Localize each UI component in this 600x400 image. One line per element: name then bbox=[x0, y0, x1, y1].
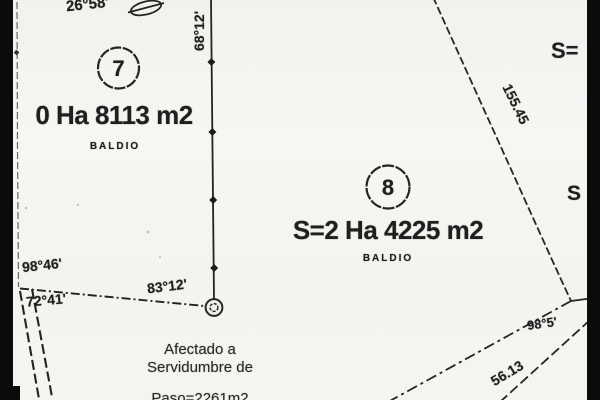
easement-note-line1: Afectado a bbox=[120, 341, 280, 358]
station-tick-4 bbox=[210, 264, 218, 272]
west-boundary-tick bbox=[14, 50, 20, 56]
parcel-7-area: 0 Ha 8113 m2 bbox=[16, 100, 212, 131]
easement-note-line2: Servidumbre de bbox=[120, 359, 280, 376]
scan-bar-left bbox=[0, 0, 13, 400]
compass-symbol bbox=[128, 0, 164, 18]
parcel-8-status: BALDIO bbox=[330, 253, 446, 264]
bearing-label-north-line: 68°12' bbox=[191, 0, 207, 62]
scan-bar-bottom-left-corner bbox=[0, 386, 20, 400]
parcel-8-area: S=2 Ha 4225 m2 bbox=[284, 215, 492, 246]
central-boundary-line bbox=[211, 0, 214, 299]
vertex-monument-outer bbox=[206, 299, 223, 316]
partial-label-top-right: S= bbox=[551, 38, 579, 64]
partial-label-mid-right: S bbox=[567, 182, 581, 206]
west-boundary-line bbox=[17, 2, 19, 287]
station-tick-1 bbox=[207, 58, 215, 66]
easement-note-line3: Paso=2261m2 bbox=[120, 390, 280, 400]
boundary-lines-layer bbox=[0, 0, 600, 400]
parcel-7-number: 7 bbox=[98, 56, 139, 82]
cadastral-map-scan: 26°58' 68°12' 98°46' 72°41' 83°12' 155.4… bbox=[0, 0, 600, 400]
parcel-7-status: BALDIO bbox=[60, 141, 170, 152]
scan-noise bbox=[25, 204, 161, 258]
parcel-8-number: 8 bbox=[366, 175, 410, 201]
scan-bar-right bbox=[587, 0, 600, 400]
station-tick-3 bbox=[209, 196, 217, 204]
